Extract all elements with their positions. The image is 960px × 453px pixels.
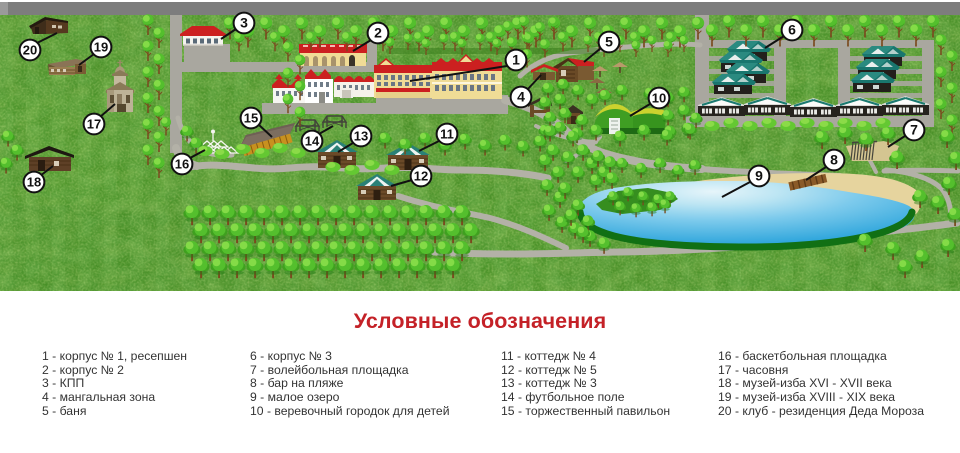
svg-text:11: 11 <box>440 127 454 142</box>
svg-text:16: 16 <box>175 157 189 172</box>
svg-text:5: 5 <box>605 34 613 50</box>
svg-text:9: 9 <box>755 168 763 184</box>
svg-text:4: 4 <box>517 89 525 105</box>
svg-text:8: 8 <box>830 152 838 168</box>
svg-text:6: 6 <box>788 22 796 38</box>
svg-text:20: 20 <box>23 43 37 58</box>
svg-text:7: 7 <box>910 122 918 138</box>
svg-text:12: 12 <box>414 169 428 184</box>
svg-text:1: 1 <box>512 52 520 68</box>
svg-text:15: 15 <box>244 111 258 126</box>
svg-text:18: 18 <box>27 175 41 190</box>
svg-text:17: 17 <box>87 117 101 132</box>
svg-text:14: 14 <box>305 134 320 149</box>
svg-text:19: 19 <box>94 40 108 55</box>
svg-text:13: 13 <box>354 129 368 144</box>
svg-text:3: 3 <box>240 15 248 31</box>
svg-text:10: 10 <box>652 91 666 106</box>
svg-text:2: 2 <box>374 25 382 41</box>
